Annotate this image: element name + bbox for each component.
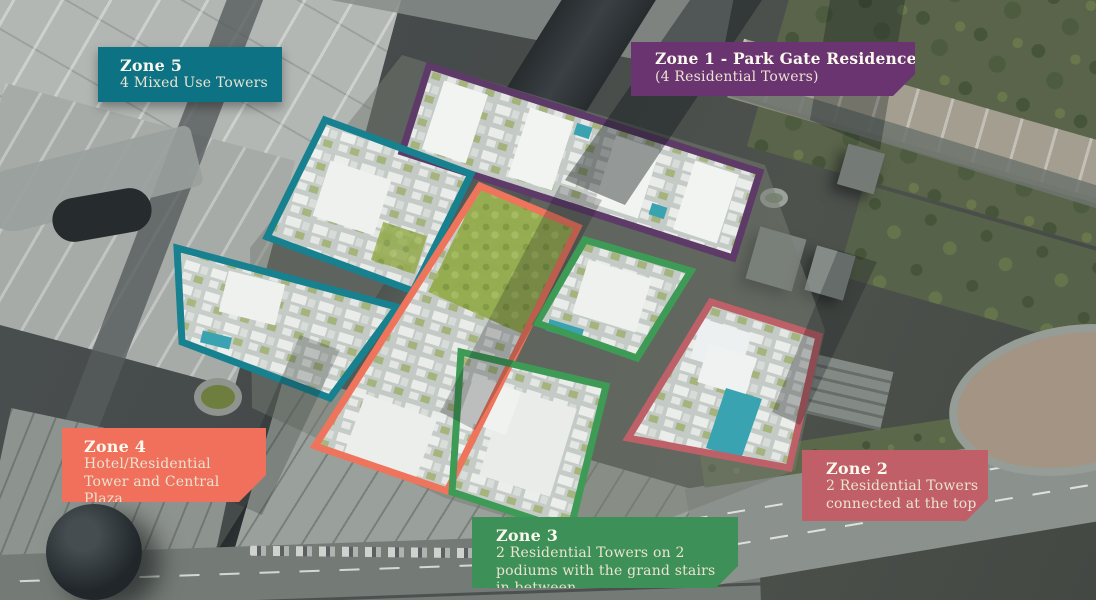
zone2-callout: Zone 2 2 Residential Towers connected at…: [802, 450, 988, 521]
zone1-callout: Zone 1 - Park Gate Residences (4 Residen…: [631, 42, 915, 96]
zone3-callout: Zone 3 2 Residential Towers on 2 podiums…: [472, 517, 738, 588]
zone2-title: Zone 2: [826, 459, 982, 478]
zone2-subtitle: 2 Residential Towers connected at the to…: [826, 478, 982, 513]
zone4-subtitle: Hotel/Residential Tower and Central Plaz…: [84, 456, 260, 508]
zone4-callout: Zone 4 Hotel/Residential Tower and Centr…: [62, 428, 266, 502]
masterplan-map: Zone 5 4 Mixed Use Towers Zone 1 - Park …: [0, 0, 1096, 600]
zone5-subtitle: 4 Mixed Use Towers: [120, 75, 274, 92]
zone1-title: Zone 1 - Park Gate Residences: [655, 50, 909, 69]
zone1-subtitle: (4 Residential Towers): [655, 69, 909, 86]
zone4-title: Zone 4: [84, 437, 260, 456]
zone3-title: Zone 3: [496, 526, 730, 545]
zone5-title: Zone 5: [120, 56, 274, 75]
zone5-callout: Zone 5 4 Mixed Use Towers: [98, 47, 282, 102]
